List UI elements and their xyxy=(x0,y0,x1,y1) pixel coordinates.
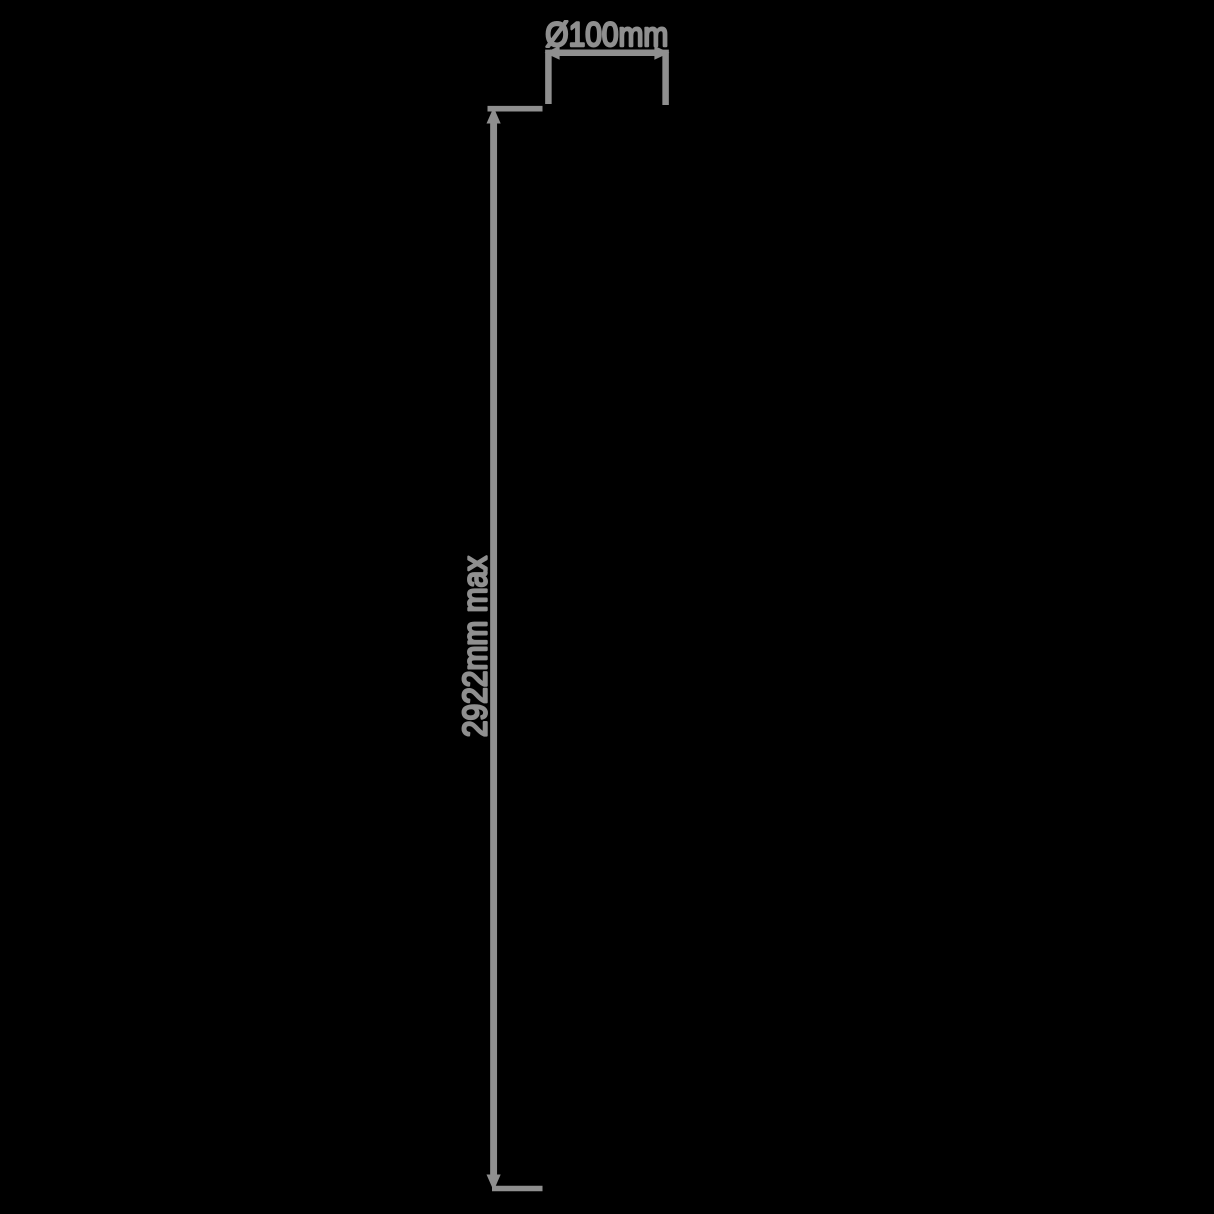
svg-text:Ø100mm: Ø100mm xyxy=(545,15,668,53)
svg-text:2922mm max: 2922mm max xyxy=(456,556,494,737)
